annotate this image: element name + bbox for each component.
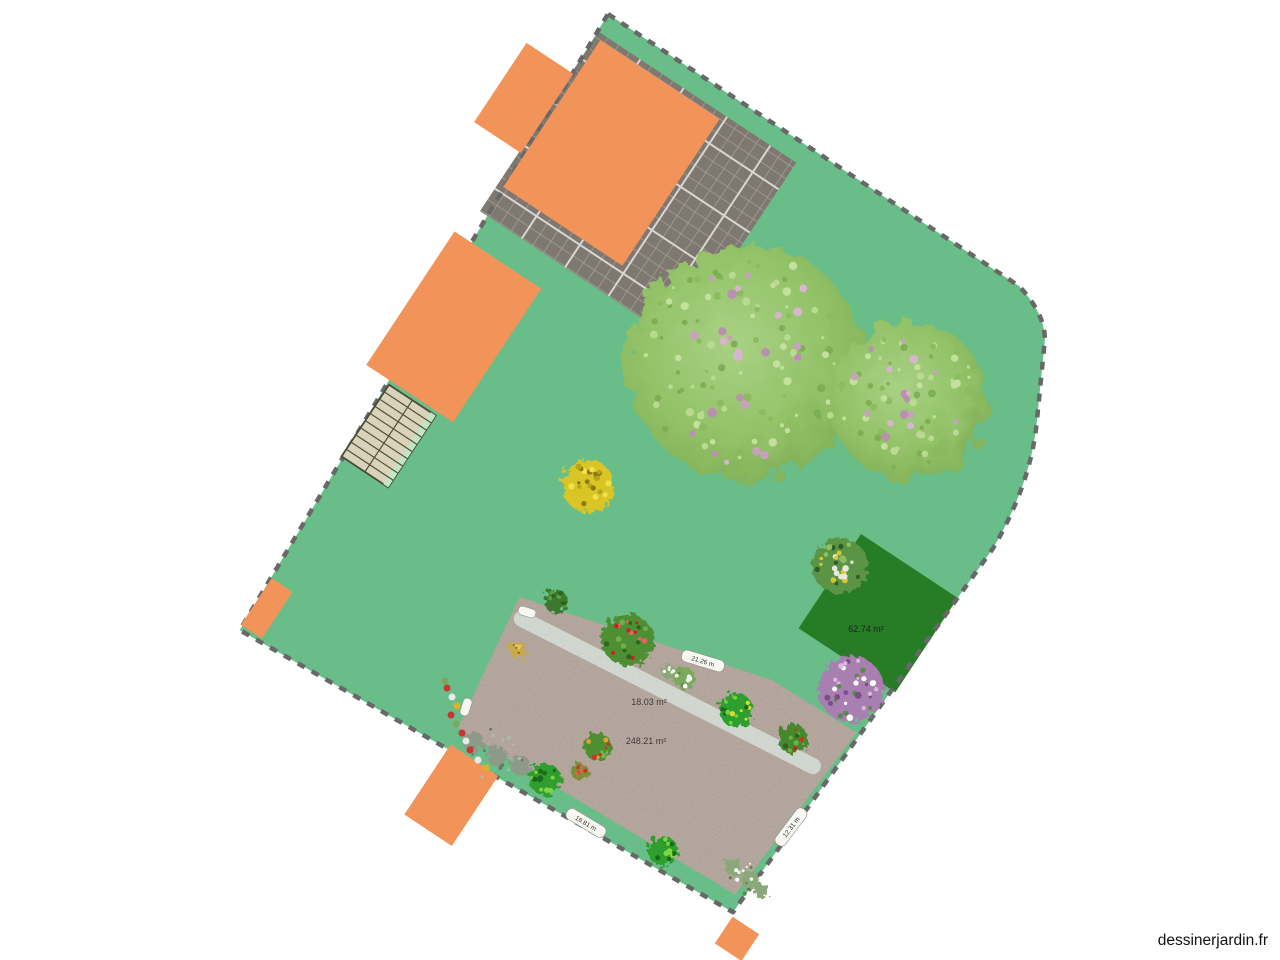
building-small-south[interactable] — [715, 917, 759, 960]
shrub-lilac[interactable] — [818, 656, 884, 722]
plant-bright-green[interactable] — [719, 693, 753, 727]
plant-dark-green[interactable] — [544, 589, 568, 613]
tree-large[interactable] — [627, 244, 863, 480]
watermark-text: dessinerjardin.fr — [1158, 932, 1268, 949]
plant-bright-green[interactable] — [529, 763, 561, 795]
shrub-mixed[interactable] — [812, 538, 868, 594]
plant-red-green[interactable] — [584, 733, 612, 761]
plant-red-green[interactable] — [778, 724, 808, 754]
garden-plan-svg: 62.74 m² 18.03 m² 248.21 m² 21.26 m 12.3… — [0, 0, 1280, 960]
plan-rotated-group — [134, 0, 1137, 960]
plant-white-flowers[interactable] — [673, 667, 695, 689]
shrub-yellow[interactable] — [562, 460, 614, 512]
plant-bright-green[interactable] — [648, 836, 678, 866]
tree-small[interactable] — [829, 321, 987, 479]
hedge-area-label: 62.74 m² — [848, 624, 884, 634]
plant-red-cluster[interactable] — [571, 763, 589, 781]
path-area-label: 18.03 m² — [631, 697, 667, 707]
plant-tan-cluster[interactable] — [509, 641, 527, 659]
garden-plan-canvas: 62.74 m² 18.03 m² 248.21 m² 21.26 m 12.3… — [0, 0, 1280, 960]
gravel-area-label: 248.21 m² — [626, 736, 667, 746]
plant-rose-bush[interactable] — [602, 614, 654, 666]
